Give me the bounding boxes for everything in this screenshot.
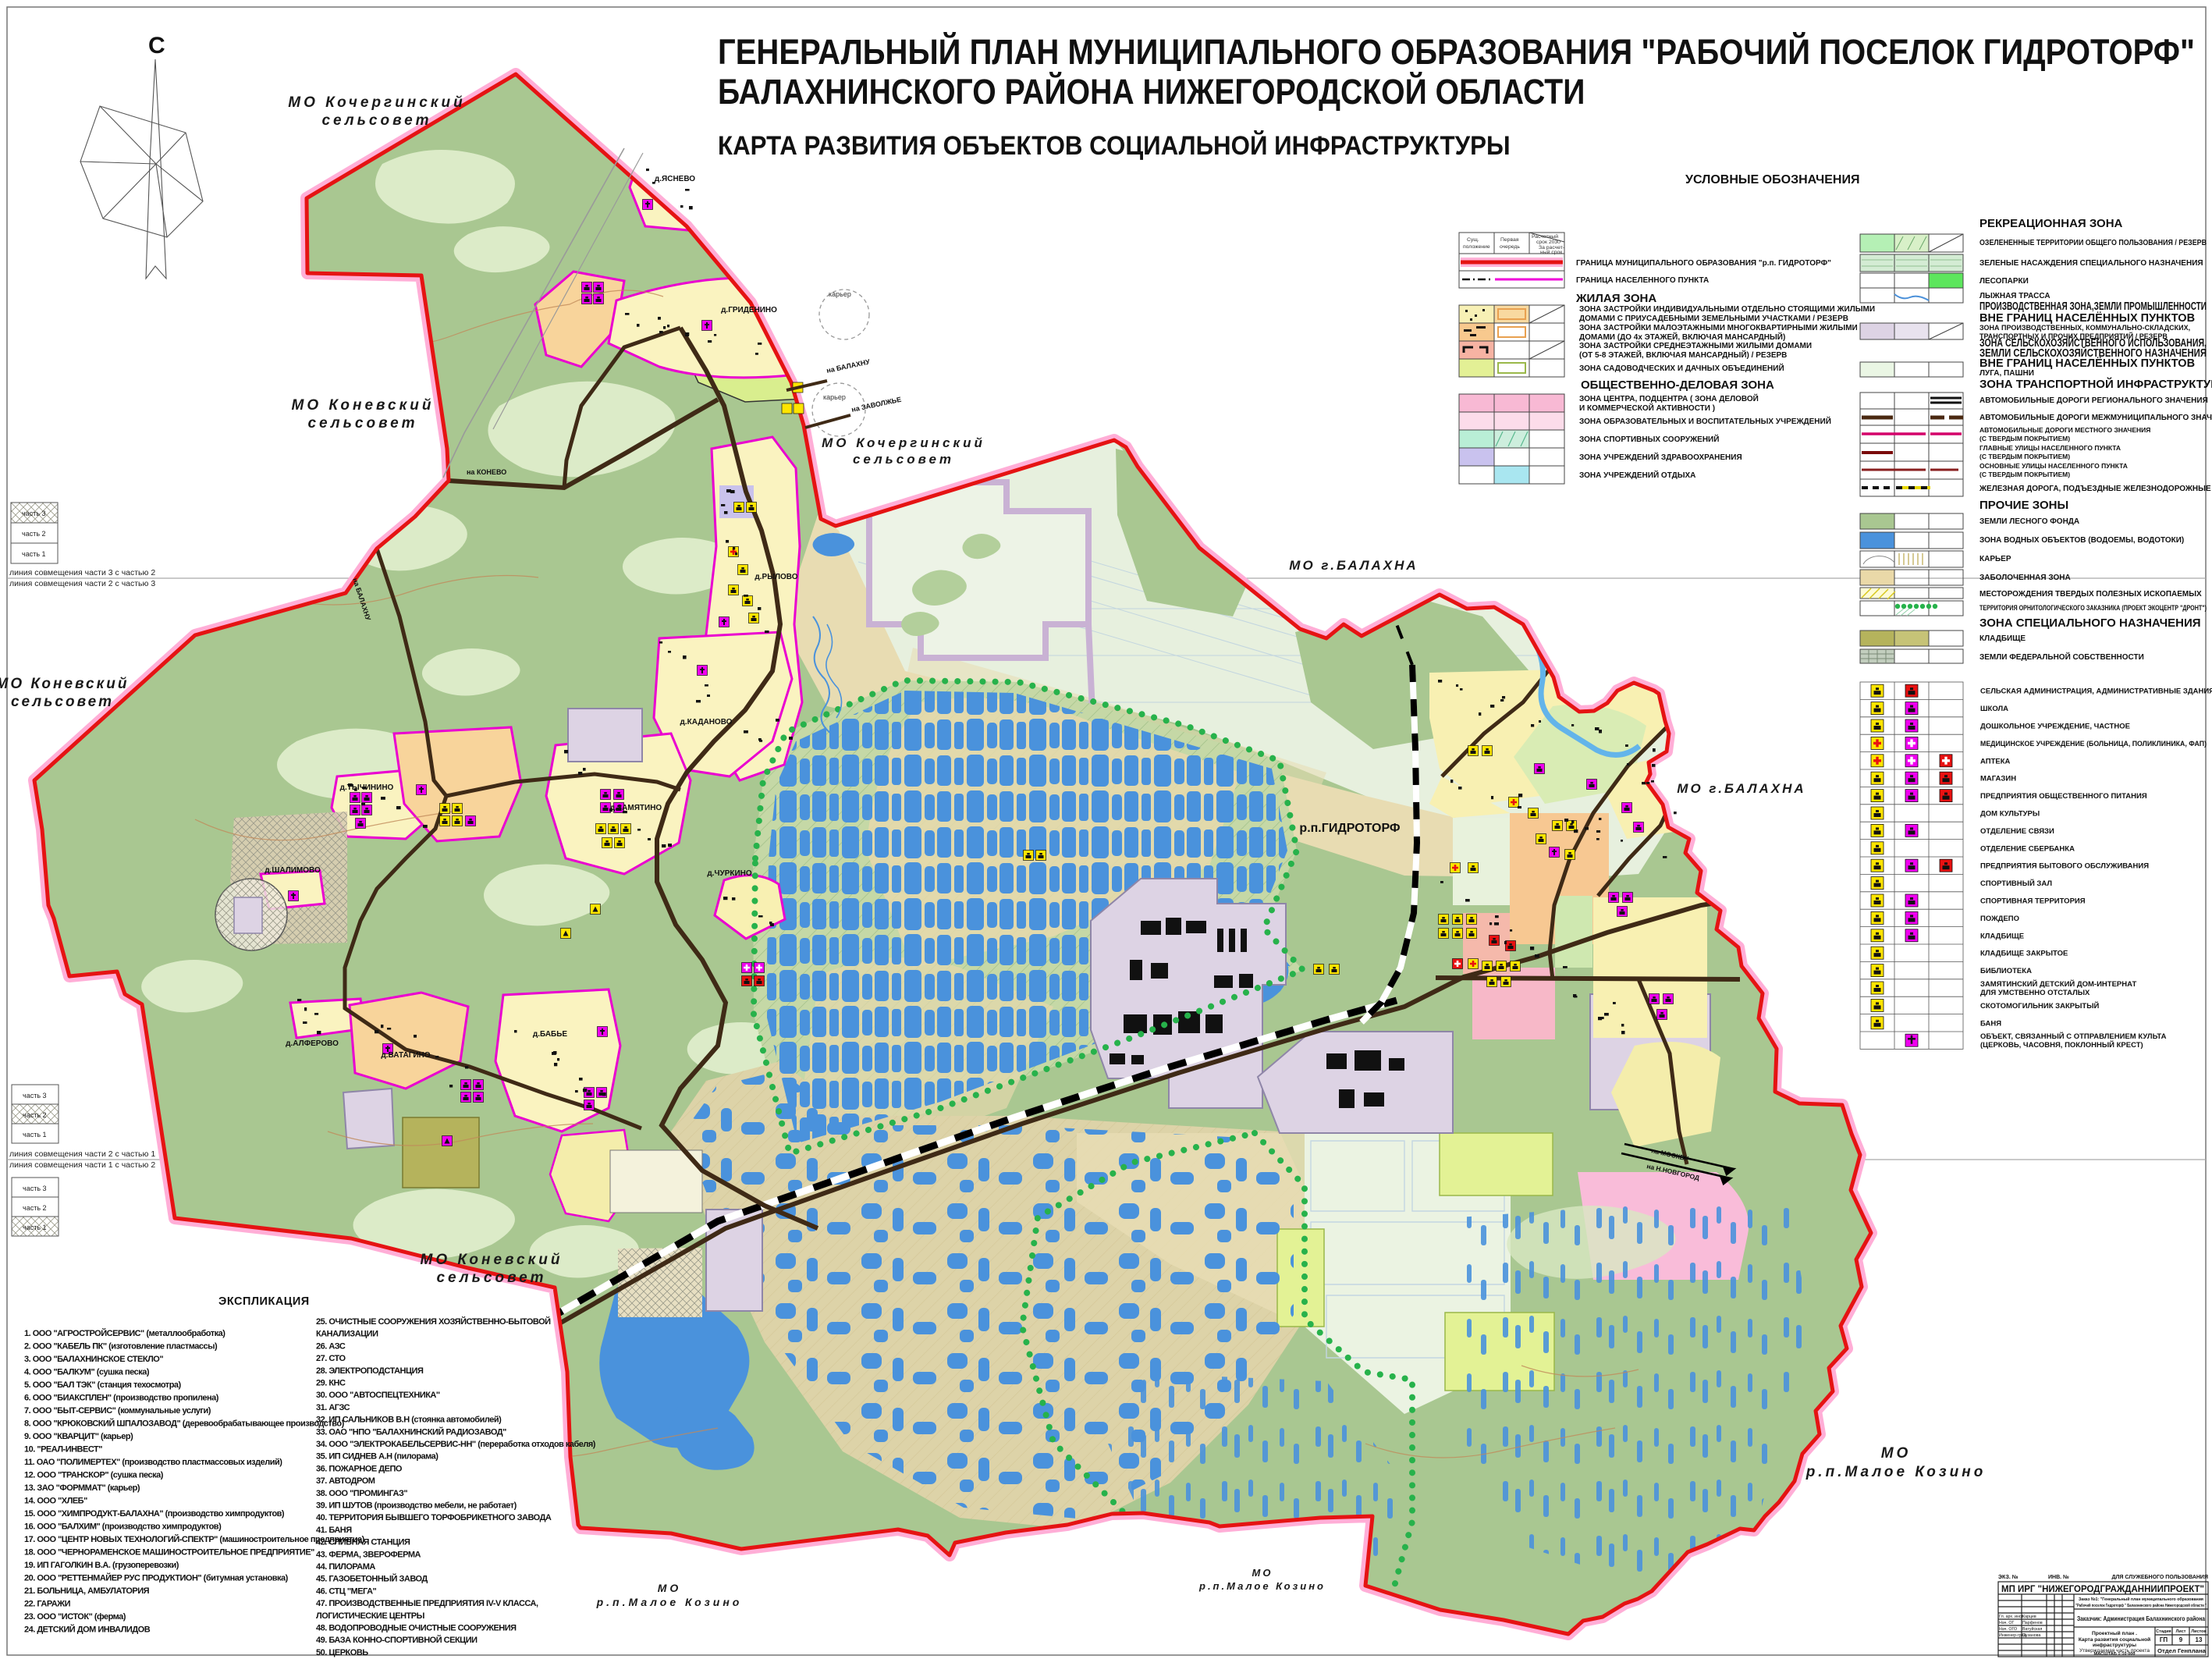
svg-text:ШКОЛА: ШКОЛА — [1980, 705, 2008, 713]
svg-text:ЗОНА ЗАСТРОЙКИ МАЛОЭТАЖНЫМИ М: ЗОНА ЗАСТРОЙКИ МАЛОЭТАЖНЫМИ МНОГОКВАРТИР… — [1579, 322, 1858, 332]
svg-text:46. СТЦ "МЕГА": 46. СТЦ "МЕГА" — [316, 1586, 377, 1596]
svg-text:д.ГРИДЕНИНО: д.ГРИДЕНИНО — [721, 306, 777, 314]
svg-text:Нач. ОГО: Нач. ОГО — [1999, 1627, 2017, 1632]
svg-text:КАРЬЕР: КАРЬЕР — [1979, 555, 2011, 563]
svg-text:31. АГЗС: 31. АГЗС — [316, 1403, 350, 1412]
svg-text:ОТДЕЛЕНИЕ СВЯЗИ: ОТДЕЛЕНИЕ СВЯЗИ — [1980, 827, 2054, 836]
svg-text:4. ООО "БАЛКУМ" (сушка песка): 4. ООО "БАЛКУМ" (сушка песка) — [24, 1368, 150, 1377]
svg-text:часть 1: часть 1 — [23, 1131, 47, 1139]
svg-text:Сущ.: Сущ. — [1467, 237, 1479, 243]
svg-text:Нач. ОГ: Нач. ОГ — [1999, 1621, 2014, 1625]
svg-text:линия совмещения части 1 с ча: линия совмещения части 1 с частью 2 — [9, 1160, 155, 1170]
svg-text:МО: МО — [658, 1582, 682, 1594]
svg-text:сельсовет: сельсовет — [853, 452, 954, 467]
svg-text:ЛЕСОПАРКИ: ЛЕСОПАРКИ — [1979, 277, 2029, 286]
svg-text:ЭКСПЛИКАЦИЯ: ЭКСПЛИКАЦИЯ — [218, 1295, 310, 1308]
svg-text:14. ООО "ХЛЕБ": 14. ООО "ХЛЕБ" — [24, 1497, 87, 1506]
svg-text:Гл. арх. инст.: Гл. арх. инст. — [1999, 1615, 2024, 1619]
svg-text:АВТОМОБИЛЬНЫЕ ДОРОГИ МЕЖМУНИЦИ: АВТОМОБИЛЬНЫЕ ДОРОГИ МЕЖМУНИЦИПАЛЬНОГО З… — [1979, 414, 2212, 422]
svg-text:3. ООО "БАЛАХНИНСКОЕ СТЕКЛО": 3. ООО "БАЛАХНИНСКОЕ СТЕКЛО" — [24, 1355, 163, 1364]
svg-text:ОТДЕЛЕНИЕ СБЕРБАНКА: ОТДЕЛЕНИЕ СБЕРБАНКА — [1980, 844, 2075, 853]
svg-text:Парфенов: Парфенов — [2022, 1621, 2043, 1625]
svg-text:карьер: карьер — [829, 290, 851, 298]
svg-text:МЕДИЦИНСКОЕ УЧРЕЖДЕНИЕ (БОЛЬНИ: МЕДИЦИНСКОЕ УЧРЕЖДЕНИЕ (БОЛЬНИЦА, ПОЛИКЛ… — [1980, 740, 2207, 748]
svg-text:ЗОНА ТРАНСПОРТНОЙ ИНФРАСТРУКТУ: ЗОНА ТРАНСПОРТНОЙ ИНФРАСТРУКТУРЫ — [1979, 377, 2212, 391]
svg-text:МО Коневский: МО Коневский — [421, 1252, 563, 1268]
svg-text:40. ТЕРРИТОРИЯ БЫВШЕГО ТОРФОБР: 40. ТЕРРИТОРИЯ БЫВШЕГО ТОРФОБРИКЕТНОГО З… — [316, 1513, 552, 1522]
svg-text:7. ООО "БЫТ-СЕРВИС" (коммуналь: 7. ООО "БЫТ-СЕРВИС" (коммунальные услуги… — [24, 1406, 211, 1416]
svg-text:С: С — [148, 33, 165, 59]
svg-text:д.БАБЬЕ: д.БАБЬЕ — [533, 1030, 568, 1039]
svg-text:Первая: Первая — [1500, 237, 1519, 243]
svg-text:23. ООО "ИСТОК" (ферма): 23. ООО "ИСТОК" (ферма) — [24, 1612, 126, 1622]
svg-text:ОСНОВНЫЕ УЛИЦЫ НАСЕЛЕННОГО ПУН: ОСНОВНЫЕ УЛИЦЫ НАСЕЛЕННОГО ПУНКТА — [1979, 462, 2128, 470]
svg-text:25. ОЧИСТНЫЕ СООРУЖЕНИЯ ХОЗЯЙС: 25. ОЧИСТНЫЕ СООРУЖЕНИЯ ХОЗЯЙСТВЕННО-БЫТ… — [316, 1316, 551, 1327]
svg-text:38. ООО "ПРОМИНГАЗ": 38. ООО "ПРОМИНГАЗ" — [316, 1489, 407, 1498]
svg-text:МАСШТАБ 1:10 000: МАСШТАБ 1:10 000 — [2094, 1652, 2136, 1657]
svg-text:д.КАДАНОВО: д.КАДАНОВО — [680, 718, 733, 726]
svg-text:ЗОНА ОБРАЗОВАТЕЛЬНЫХ И ВОСПИТ: ЗОНА ОБРАЗОВАТЕЛЬНЫХ И ВОСПИТАТЕЛЬНЫХ УЧ… — [1579, 416, 1831, 426]
svg-text:ТЕРРИТОРИЯ ОРНИТОЛОГИЧЕСКОГО З: ТЕРРИТОРИЯ ОРНИТОЛОГИЧЕСКОГО ЗАКАЗНИКА (… — [1979, 604, 2207, 612]
svg-text:часть 2: часть 2 — [23, 1204, 47, 1212]
svg-text:44. ПИЛОРАМА: 44. ПИЛОРАМА — [316, 1562, 375, 1572]
svg-text:(ЦЕРКОВЬ, ЧАСОВНЯ, ПОКЛОННЫЙ К: (ЦЕРКОВЬ, ЧАСОВНЯ, ПОКЛОННЫЙ КРЕСТ) — [1980, 1040, 2143, 1050]
svg-text:ЖИЛАЯ ЗОНА: ЖИЛАЯ ЗОНА — [1575, 292, 1656, 305]
svg-text:сельсовет: сельсовет — [436, 1270, 546, 1286]
svg-text:линия совмещения части 2 с ча: линия совмещения части 2 с частью 3 — [9, 579, 155, 588]
svg-text:ГЛАВНЫЕ УЛИЦЫ НАСЕЛЕННОГО ПУНК: ГЛАВНЫЕ УЛИЦЫ НАСЕЛЕННОГО ПУНКТА — [1979, 444, 2121, 452]
svg-text:(С ТВЕРДЫМ ПОКРЫТИЕМ): (С ТВЕРДЫМ ПОКРЫТИЕМ) — [1979, 471, 2070, 478]
svg-text:ОБЩЕСТВЕННО-ДЕЛОВАЯ ЗОНА: ОБЩЕСТВЕННО-ДЕЛОВАЯ ЗОНА — [1581, 378, 1774, 392]
svg-text:срок 2030: срок 2030 — [1536, 240, 1560, 245]
svg-text:д.ЯСНЕВО: д.ЯСНЕВО — [655, 175, 695, 183]
svg-text:часть 3: часть 3 — [23, 1092, 47, 1099]
svg-text:ДОМ КУЛЬТУРЫ: ДОМ КУЛЬТУРЫ — [1980, 810, 2040, 819]
svg-text:Стадия: Стадия — [2156, 1629, 2171, 1634]
svg-text:9: 9 — [2179, 1636, 2183, 1643]
svg-text:ПРОИЗВОДСТВЕННАЯ ЗОНА,ЗЕМЛИ ПР: ПРОИЗВОДСТВЕННАЯ ЗОНА,ЗЕМЛИ ПРОМЫШЛЕННОС… — [1979, 300, 2207, 313]
svg-text:Отдел Генплана: Отдел Генплана — [2157, 1647, 2207, 1654]
svg-text:МАГАЗИН: МАГАЗИН — [1980, 775, 2016, 783]
svg-text:СКОТОМОГИЛЬНИК ЗАКРЫТЫЙ: СКОТОМОГИЛЬНИК ЗАКРЫТЫЙ — [1980, 1001, 2099, 1011]
svg-text:11. ОАО "ПОЛИМЕРТЕХ" (производ: 11. ОАО "ПОЛИМЕРТЕХ" (производство пласт… — [24, 1458, 282, 1467]
svg-text:д.ЧУРКИНО: д.ЧУРКИНО — [707, 869, 752, 878]
svg-text:ВНЕ ГРАНИЦ НАСЕЛЁННЫХ ПУНКТОВ: ВНЕ ГРАНИЦ НАСЕЛЁННЫХ ПУНКТОВ — [1979, 311, 2195, 325]
svg-text:ЗОНА УЧРЕЖДЕНИЙ ЗДРАВООХРАНЕНИ: ЗОНА УЧРЕЖДЕНИЙ ЗДРАВООХРАНЕНИЯ — [1579, 452, 1742, 462]
svg-text:ЛЫЖНАЯ ТРАССА: ЛЫЖНАЯ ТРАССА — [1979, 292, 2050, 300]
svg-text:д.ВАТАГИНО: д.ВАТАГИНО — [381, 1051, 430, 1060]
svg-text:30. ООО "АВТОСПЕЦТЕХНИКА": 30. ООО "АВТОСПЕЦТЕХНИКА" — [316, 1391, 440, 1400]
svg-text:р.п.Малое Козино: р.п.Малое Козино — [1198, 1580, 1326, 1592]
svg-text:МО Кочергинский: МО Кочергинский — [288, 94, 465, 111]
svg-text:27. СТО: 27. СТО — [316, 1354, 346, 1363]
svg-text:АВТОМОБИЛЬНЫЕ ДОРОГИ МЕСТНОГО: АВТОМОБИЛЬНЫЕ ДОРОГИ МЕСТНОГО ЗНАЧЕНИЯ — [1979, 426, 2150, 434]
svg-text:42. СЛИВНАЯ СТАНЦИЯ: 42. СЛИВНАЯ СТАНЦИЯ — [316, 1538, 410, 1547]
svg-text:ЭКЗ. №: ЭКЗ. № — [1998, 1574, 2018, 1580]
svg-text:ЗЕЛЕНЫЕ НАСАЖДЕНИЯ СПЕЦИАЛЬНОГ: ЗЕЛЕНЫЕ НАСАЖДЕНИЯ СПЕЦИАЛЬНОГО НАЗНАЧЕН… — [1979, 259, 2203, 268]
svg-text:22. ГАРАЖИ: 22. ГАРАЖИ — [24, 1600, 71, 1609]
svg-text:32. ИП САЛЬНИКОВ В.Н (стоянка: 32. ИП САЛЬНИКОВ В.Н (стоянка автомобиле… — [316, 1416, 502, 1425]
svg-text:КЛАДБИЩЕ ЗАКРЫТОЕ: КЛАДБИЩЕ ЗАКРЫТОЕ — [1980, 950, 2068, 958]
svg-text:д.РЫЛОВО: д.РЫЛОВО — [754, 573, 797, 581]
svg-text:р.п.Малое Козино: р.п.Малое Козино — [596, 1596, 743, 1608]
svg-text:Пузанова: Пузанова — [2022, 1633, 2040, 1638]
svg-text:АВТОМОБИЛЬНЫЕ ДОРОГИ РЕГИОНАЛЬ: АВТОМОБИЛЬНЫЕ ДОРОГИ РЕГИОНАЛЬНОГО ЗНАЧЕ… — [1979, 396, 2208, 405]
svg-text:МО Кочергинский: МО Кочергинский — [822, 435, 985, 450]
svg-text:49. БАЗА КОННО-СПОРТИВНОЙ СЕКЦ: 49. БАЗА КОННО-СПОРТИВНОЙ СЕКЦИИ — [316, 1635, 478, 1645]
svg-text:37. АВТОДРОМ: 37. АВТОДРОМ — [316, 1476, 375, 1486]
svg-text:41. БАНЯ: 41. БАНЯ — [316, 1526, 352, 1535]
svg-text:ОБЪЕКТ, СВЯЗАННЫЙ С ОТПРАВЛЕНИ: ОБЪЕКТ, СВЯЗАННЫЙ С ОТПРАВЛЕНИЕМ КУЛЬТА — [1980, 1032, 2167, 1041]
svg-text:БАНЯ: БАНЯ — [1980, 1019, 2001, 1028]
svg-text:21. БОЛЬНИЦА, АМБУЛАТОРИЯ: 21. БОЛЬНИЦА, АМБУЛАТОРИЯ — [24, 1586, 150, 1596]
svg-text:на БАЛАХНУ: на БАЛАХНУ — [826, 357, 871, 375]
svg-text:ДОМАМИ С ПРИУСАДЕБНЫМИ ЗЕМЕЛЬН: ДОМАМИ С ПРИУСАДЕБНЫМИ ЗЕМЕЛЬНЫМИ УЧАСТК… — [1579, 314, 1848, 323]
svg-text:ЗАБОЛОЧЕННАЯ ЗОНА: ЗАБОЛОЧЕННАЯ ЗОНА — [1979, 574, 2071, 582]
svg-text:ЗОНА ВОДНЫХ ОБЪЕКТОВ (ВОДОЕМ: ЗОНА ВОДНЫХ ОБЪЕКТОВ (ВОДОЕМЫ, ВОДОТОКИ) — [1979, 536, 2184, 545]
svg-text:ГП: ГП — [2160, 1636, 2168, 1643]
svg-text:ДЛЯ СЛУЖЕБНОГО ПОЛЬЗОВАНИЯ: ДЛЯ СЛУЖЕБНОГО ПОЛЬЗОВАНИЯ — [2111, 1575, 2208, 1580]
svg-text:ОЗЕЛЕНЕННЫЕ ТЕРРИТОРИИ ОБЩЕГО: ОЗЕЛЕНЕННЫЕ ТЕРРИТОРИИ ОБЩЕГО ПОЛЬЗОВАНИ… — [1979, 239, 2207, 247]
svg-text:ДОШКОЛЬНОЕ УЧРЕЖДЕНИЕ, ЧАСТНОЕ: ДОШКОЛЬНОЕ УЧРЕЖДЕНИЕ, ЧАСТНОЕ — [1980, 723, 2130, 731]
svg-text:карьер: карьер — [823, 393, 846, 401]
svg-text:на КОНЕВО: на КОНЕВО — [467, 468, 506, 476]
svg-text:5. ООО "БАЛ ТЭК" (станция техо: 5. ООО "БАЛ ТЭК" (станция техосмотра) — [24, 1380, 182, 1390]
svg-text:10. "РЕАЛ-ИНВЕСТ": 10. "РЕАЛ-ИНВЕСТ" — [24, 1445, 102, 1455]
svg-text:ЖЕЛЕЗНАЯ ДОРОГА, ПОДЪЕЗДНЫЕ ЖЕ: ЖЕЛЕЗНАЯ ДОРОГА, ПОДЪЕЗДНЫЕ ЖЕЛЕЗНОДОРОЖ… — [1979, 485, 2212, 493]
svg-text:ЛУГА, ПАШНИ: ЛУГА, ПАШНИ — [1979, 369, 2034, 378]
svg-text:ЗОНА ЦЕНТРА, ПОДЦЕНТРА ( ЗОНА: ЗОНА ЦЕНТРА, ПОДЦЕНТРА ( ЗОНА ДЕЛОВОЙ — [1579, 393, 1759, 403]
svg-text:д.ШАЛИМОВО: д.ШАЛИМОВО — [265, 866, 321, 875]
svg-text:И КОММЕРЧЕСКОЙ АКТИВНОСТИ ): И КОММЕРЧЕСКОЙ АКТИВНОСТИ ) — [1579, 403, 1715, 413]
svg-text:12. ООО "ТРАНСКОР" (сушка песк: 12. ООО "ТРАНСКОР" (сушка песка) — [24, 1471, 164, 1480]
svg-text:сельсовет: сельсовет — [321, 112, 431, 129]
svg-text:МО Коневский: МО Коневский — [292, 397, 435, 414]
svg-text:ДЛЯ УМСТВЕННО ОТСТАЛЫХ: ДЛЯ УМСТВЕННО ОТСТАЛЫХ — [1980, 989, 2090, 997]
svg-text:на ЗАВОЛЖЬЕ: на ЗАВОЛЖЬЕ — [850, 396, 902, 414]
svg-text:Заказчик: Администрация Балахн: Заказчик: Администрация Балахнинского ра… — [2077, 1615, 2205, 1622]
svg-text:ЗОНА ЗАСТРОЙКИ СРЕДНЕЭТАЖНЫМИ: ЗОНА ЗАСТРОЙКИ СРЕДНЕЭТАЖНЫМИ ЖИЛЫМИ ДОМ… — [1579, 340, 1812, 350]
svg-text:26. АЗС: 26. АЗС — [316, 1341, 346, 1351]
svg-text:МП ИРГ "НИЖЕГОРОДГРАЖДАННИИПРО: МП ИРГ "НИЖЕГОРОДГРАЖДАННИИПРОЕКТ" — [2001, 1585, 2204, 1594]
svg-text:инфраструктуры: инфраструктуры — [2093, 1643, 2136, 1648]
svg-text:8. ООО "КРЮКОВСКИЙ ШПАЛОЗАВОД": 8. ООО "КРЮКОВСКИЙ ШПАЛОЗАВОД" (деревооб… — [24, 1419, 345, 1429]
svg-text:ЗОНА СПОРТИВНЫХ СООРУЖЕНИЙ: ЗОНА СПОРТИВНЫХ СООРУЖЕНИЙ — [1579, 434, 1719, 444]
svg-text:16. ООО "БАЛХИМ" (производство: 16. ООО "БАЛХИМ" (производство химпродук… — [24, 1522, 222, 1532]
svg-text:Лист: Лист — [2176, 1629, 2186, 1634]
svg-text:18. ООО "ЧЕРНОРАМЕНСКОЕ МАШИНО: 18. ООО "ЧЕРНОРАМЕНСКОЕ МАШИНОСТРОИТЕЛЬН… — [24, 1548, 314, 1558]
svg-text:(ОТ 5-8 ЭТАЖЕЙ, ВКЛЮЧАЯ МАНСАР: (ОТ 5-8 ЭТАЖЕЙ, ВКЛЮЧАЯ МАНСАРДНЫЙ) / РЕ… — [1579, 350, 1787, 360]
svg-text:Карта развития социальной: Карта развития социальной — [2079, 1636, 2150, 1643]
svg-text:ГРАНИЦА МУНИЦИПАЛЬНОГО ОБРАЗОВ: ГРАНИЦА МУНИЦИПАЛЬНОГО ОБРАЗОВАНИЯ "р.п.… — [1576, 259, 1831, 268]
svg-text:МО г.БАЛАХНА: МО г.БАЛАХНА — [1289, 558, 1418, 573]
svg-text:ЗОНА УЧРЕЖДЕНИЙ ОТДЫХА: ЗОНА УЧРЕЖДЕНИЙ ОТДЫХА — [1579, 470, 1695, 480]
svg-text:часть 2: часть 2 — [23, 1111, 47, 1119]
svg-text:15. ООО "ХИМПРОДУКТ-БАЛАХНА" (: 15. ООО "ХИМПРОДУКТ-БАЛАХНА" (производст… — [24, 1509, 285, 1519]
svg-text:положение: положение — [1463, 244, 1490, 250]
svg-text:6. ООО "БИАКСПЛЕН" (производст: 6. ООО "БИАКСПЛЕН" (производство пропиле… — [24, 1394, 219, 1403]
svg-text:МО г.БАЛАХНА: МО г.БАЛАХНА — [1677, 781, 1805, 796]
svg-text:39. ИП ШУТОВ (производство меб: 39. ИП ШУТОВ (производство мебели, не ра… — [316, 1501, 517, 1511]
svg-text:ЗОНА ЗАСТРОЙКИ ИНДИВИДУАЛЬНЫМИ: ЗОНА ЗАСТРОЙКИ ИНДИВИДУАЛЬНЫМИ ОТДЕЛЬНО … — [1579, 304, 1875, 314]
svg-text:СПОРТИВНЫЙ ЗАЛ: СПОРТИВНЫЙ ЗАЛ — [1980, 879, 2052, 888]
svg-text:Заказ №1: "Генеральный план му: Заказ №1: "Генеральный план муниципально… — [2079, 1597, 2203, 1602]
svg-text:ПРЕДПРИЯТИЯ ОБЩЕСТВЕННОГО ПИТА: ПРЕДПРИЯТИЯ ОБЩЕСТВЕННОГО ПИТАНИЯ — [1980, 792, 2147, 801]
svg-text:д.ЗАМЯТИНО: д.ЗАМЯТИНО — [610, 804, 662, 812]
svg-text:ЗОНА ПРОИЗВОДСТВЕННЫХ, КОММУНА: ЗОНА ПРОИЗВОДСТВЕННЫХ, КОММУНАЛЬНО-СКЛАД… — [1979, 324, 2190, 332]
svg-text:СЕЛЬСКАЯ АДМИНИСТРАЦИЯ, АДМИНИ: СЕЛЬСКАЯ АДМИНИСТРАЦИЯ, АДМИНИСТРАТИВНЫЕ… — [1980, 687, 2212, 696]
svg-text:13: 13 — [2196, 1636, 2203, 1643]
svg-text:1. ООО "АГРОСТРОЙСЕРВИС" (мет: 1. ООО "АГРОСТРОЙСЕРВИС" (металлообработ… — [24, 1328, 225, 1338]
svg-text:24. ДЕТСКИЙ ДОМ ИНВАЛИДОВ: 24. ДЕТСКИЙ ДОМ ИНВАЛИДОВ — [24, 1625, 151, 1635]
svg-text:МО: МО — [1881, 1445, 1912, 1462]
svg-text:ЗОНА САДОВОДЧЕСКИХ И ДАЧНЫХ ОБ: ЗОНА САДОВОДЧЕСКИХ И ДАЧНЫХ ОБЪЕДИНЕНИЙ — [1579, 363, 1784, 373]
svg-text:ЛОГИСТИЧЕСКИЕ ЦЕНТРЫ: ЛОГИСТИЧЕСКИЕ ЦЕНТРЫ — [316, 1611, 425, 1621]
svg-text:ЗАМЯТИНСКИЙ ДЕТСКИЙ ДОМ-ИНТЕРН: ЗАМЯТИНСКИЙ ДЕТСКИЙ ДОМ-ИНТЕРНАТ — [1980, 979, 2137, 989]
svg-text:р.п.ГИДРОТОРФ: р.п.ГИДРОТОРФ — [1299, 822, 1400, 835]
svg-text:р.п.Малое Козино: р.п.Малое Козино — [1805, 1464, 1987, 1480]
svg-text:Карцев: Карцев — [2022, 1615, 2036, 1619]
svg-text:МЕСТОРОЖДЕНИЯ ТВЕРДЫХ ПОЛЕЗНЫХ: МЕСТОРОЖДЕНИЯ ТВЕРДЫХ ПОЛЕЗНЫХ ИСКОПАЕМЫ… — [1979, 590, 2202, 599]
svg-text:ный срок: ный срок — [1540, 249, 1562, 255]
svg-text:36. ПОЖАРНОЕ ДЕПО: 36. ПОЖАРНОЕ ДЕПО — [316, 1464, 403, 1473]
svg-text:43. ФЕРМА, ЗВЕРОФЕРМА: 43. ФЕРМА, ЗВЕРОФЕРМА — [316, 1550, 421, 1559]
svg-text:ПРОЧИЕ ЗОНЫ: ПРОЧИЕ ЗОНЫ — [1979, 499, 2068, 512]
svg-text:ЗЕМЛИ ЛЕСНОГО ФОНДА: ЗЕМЛИ ЛЕСНОГО ФОНДА — [1979, 517, 2079, 526]
svg-text:часть 3: часть 3 — [23, 1185, 47, 1192]
svg-text:КАНАЛИЗАЦИИ: КАНАЛИЗАЦИИ — [316, 1330, 378, 1339]
svg-text:"Рабочий поселок Гидроторф " Б: "Рабочий поселок Гидроторф " Балахнинско… — [2075, 1603, 2207, 1608]
svg-text:часть 3: часть 3 — [22, 510, 46, 517]
svg-text:СПОРТИВНАЯ ТЕРРИТОРИЯ: СПОРТИВНАЯ ТЕРРИТОРИЯ — [1980, 897, 2086, 906]
svg-text:19. ИП ГАГОЛКИН В.А. (грузопер: 19. ИП ГАГОЛКИН В.А. (грузоперевозки) — [24, 1561, 179, 1570]
svg-text:МО: МО — [1252, 1567, 1273, 1579]
svg-text:50. ЦЕРКОВЬ: 50. ЦЕРКОВЬ — [316, 1648, 368, 1657]
svg-text:Проектный план .: Проектный план . — [2092, 1630, 2137, 1636]
svg-text:ЗОНА СПЕЦИАЛЬНОГО НАЗНАЧЕНИЯ: ЗОНА СПЕЦИАЛЬНОГО НАЗНАЧЕНИЯ — [1979, 616, 2201, 630]
svg-text:Расчетный: Расчетный — [1532, 233, 1558, 240]
svg-text:АПТЕКА: АПТЕКА — [1980, 757, 2011, 766]
svg-text:часть 2: часть 2 — [22, 530, 46, 538]
svg-text:часть 1: часть 1 — [23, 1224, 47, 1231]
svg-text:линия совмещения части 3 с ча: линия совмещения части 3 с частью 2 — [9, 568, 155, 577]
svg-text:РЕКРЕАЦИОННАЯ ЗОНА: РЕКРЕАЦИОННАЯ ЗОНА — [1979, 217, 2123, 230]
svg-text:(С ТВЕРДЫМ ПОКРЫТИЕМ): (С ТВЕРДЫМ ПОКРЫТИЕМ) — [1979, 453, 2070, 460]
svg-text:28. ЭЛЕКТРОПОДСТАНЦИЯ: 28. ЭЛЕКТРОПОДСТАНЦИЯ — [316, 1366, 424, 1376]
svg-text:2. ООО "КАБЕЛЬ ПК" (изготовлен: 2. ООО "КАБЕЛЬ ПК" (изготовление пластма… — [24, 1342, 218, 1352]
svg-text:д.АЛФЕРОВО: д.АЛФЕРОВО — [286, 1039, 339, 1048]
svg-text:9. ООО "КВАРЦИТ" (карьер): 9. ООО "КВАРЦИТ" (карьер) — [24, 1432, 133, 1441]
svg-text:35. ИП СИДНЕВ А.Н (пилорама): 35. ИП СИДНЕВ А.Н (пилорама) — [316, 1452, 438, 1462]
svg-text:ГРАНИЦА НАСЕЛЕННОГО ПУНКТА: ГРАНИЦА НАСЕЛЕННОГО ПУНКТА — [1576, 276, 1709, 285]
svg-text:КЛАДБИЩЕ: КЛАДБИЩЕ — [1979, 634, 2026, 643]
svg-text:20. ООО "РЕТТЕНМАЙЕР РУС ПРОДУ: 20. ООО "РЕТТЕНМАЙЕР РУС ПРОДУКТИОН" (би… — [24, 1573, 289, 1583]
svg-text:часть 1: часть 1 — [22, 550, 46, 558]
svg-text:ДОМАМИ (ДО 4х ЭТАЖЕЙ, ВКЛЮЧАЯ: ДОМАМИ (ДО 4х ЭТАЖЕЙ, ВКЛЮЧАЯ МАНСАРДНЫЙ… — [1579, 332, 1785, 342]
svg-text:Ватуйская: Ватуйская — [2022, 1626, 2042, 1632]
svg-text:34. ООО "ЭЛЕКТРОКАБЕЛЬСЕРВИС-Н: 34. ООО "ЭЛЕКТРОКАБЕЛЬСЕРВИС-НН" (перера… — [316, 1440, 596, 1449]
svg-text:33. ОАО "НПО "БАЛАХНИНСКИЙ РАД: 33. ОАО "НПО "БАЛАХНИНСКИЙ РАДИОЗАВОД" — [316, 1426, 506, 1437]
svg-text:17. ООО "ЦЕНТР НОВЫХ ТЕХНОЛОГИ: 17. ООО "ЦЕНТР НОВЫХ ТЕХНОЛОГИЙ-СПЕКТР" … — [24, 1534, 365, 1544]
svg-text:(С ТВЕРДЫМ ПОКРЫТИЕМ): (С ТВЕРДЫМ ПОКРЫТИЕМ) — [1979, 435, 2070, 442]
svg-text:д.ТЫЧИНИНО: д.ТЫЧИНИНО — [340, 783, 394, 792]
svg-text:ЗЕМЛИ ФЕДЕРАЛЬНОЙ СОБСТВЕННОСТ: ЗЕМЛИ ФЕДЕРАЛЬНОЙ СОБСТВЕННОСТИ — [1979, 652, 2144, 662]
svg-text:очередь: очередь — [1500, 244, 1520, 250]
svg-text:45. ГАЗОБЕТОННЫЙ ЗАВОД: 45. ГАЗОБЕТОННЫЙ ЗАВОД — [316, 1574, 428, 1584]
svg-text:сельсовет: сельсовет — [11, 694, 114, 710]
svg-text:29. КНС: 29. КНС — [316, 1379, 346, 1388]
svg-text:ПОЖДЕПО: ПОЖДЕПО — [1980, 915, 2019, 923]
svg-text:сельсовет: сельсовет — [307, 415, 417, 432]
svg-text:КЛАДБИЩЕ: КЛАДБИЩЕ — [1980, 932, 2024, 940]
svg-text:ИНВ. №: ИНВ. № — [2048, 1574, 2069, 1580]
svg-text:МО Коневский: МО Коневский — [0, 676, 129, 692]
svg-text:линия совмещения части 2 с ча: линия совмещения части 2 с частью 1 — [9, 1149, 155, 1159]
svg-text:47. ПРОИЗВОДСТВЕННЫЕ ПРЕДПРИЯТ: 47. ПРОИЗВОДСТВЕННЫЕ ПРЕДПРИЯТИЯ IV-V КЛ… — [316, 1599, 538, 1608]
svg-text:ВНЕ ГРАНИЦ НАСЕЛЁННЫХ ПУНКТОВ: ВНЕ ГРАНИЦ НАСЕЛЁННЫХ ПУНКТОВ — [1979, 357, 2195, 370]
svg-text:Листов: Листов — [2191, 1629, 2207, 1634]
svg-text:БИБЛИОТЕКА: БИБЛИОТЕКА — [1980, 967, 2032, 975]
svg-text:13. ЗАО "ФОРММАТ" (карьер): 13. ЗАО "ФОРММАТ" (карьер) — [24, 1483, 140, 1493]
svg-text:48. ВОДОПРОВОДНЫЕ ОЧИСТНЫЕ СОО: 48. ВОДОПРОВОДНЫЕ ОЧИСТНЫЕ СООРУЖЕНИЯ — [316, 1624, 517, 1633]
svg-text:ПРЕДПРИЯТИЯ БЫТОВОГО ОБСЛУЖИВА: ПРЕДПРИЯТИЯ БЫТОВОГО ОБСЛУЖИВАНИЯ — [1980, 862, 2149, 871]
